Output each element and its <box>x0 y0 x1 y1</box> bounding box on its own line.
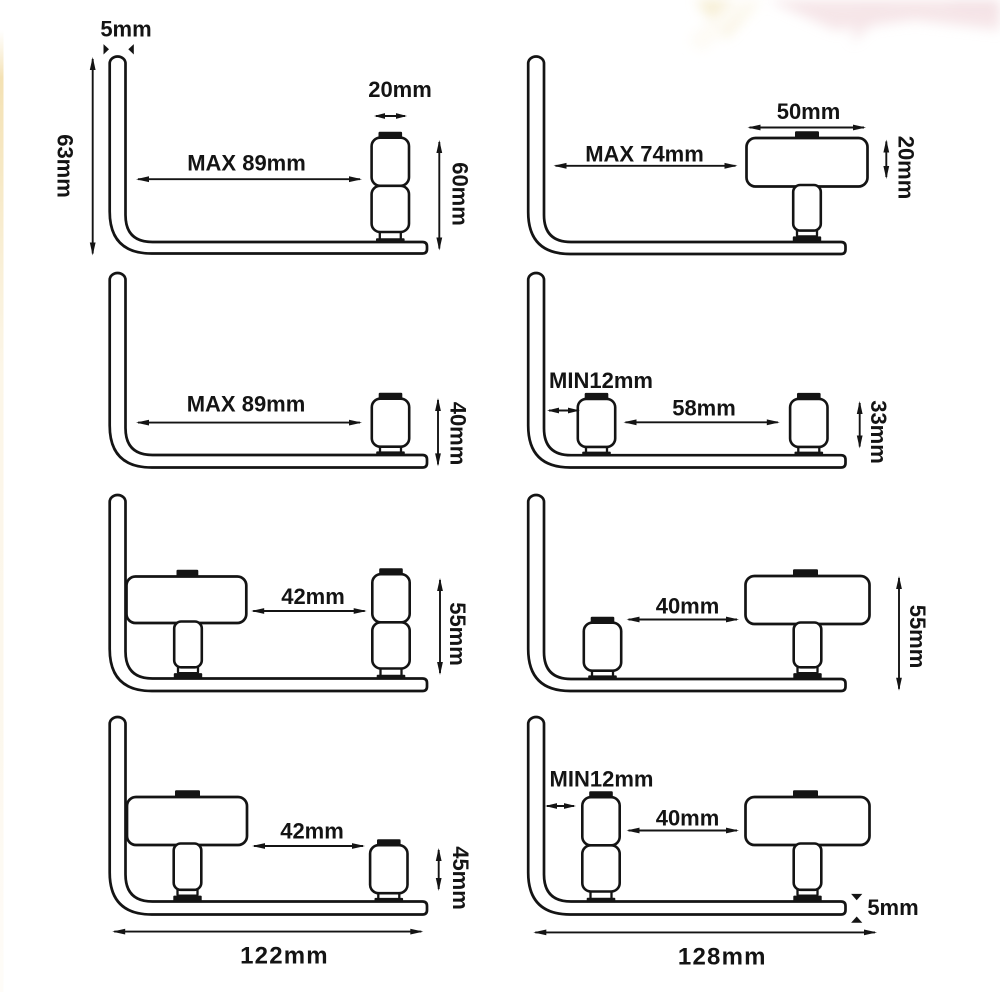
svg-text:5mm: 5mm <box>100 17 151 42</box>
svg-text:42mm: 42mm <box>280 819 344 844</box>
svg-text:40mm: 40mm <box>656 594 720 619</box>
svg-text:20mm: 20mm <box>368 77 432 102</box>
svg-text:40mm: 40mm <box>446 402 471 466</box>
svg-text:122mm: 122mm <box>240 943 329 970</box>
svg-text:50mm: 50mm <box>777 99 841 124</box>
svg-text:20mm: 20mm <box>894 136 919 200</box>
svg-text:42mm: 42mm <box>281 584 345 609</box>
svg-text:58mm: 58mm <box>672 396 736 421</box>
svg-text:55mm: 55mm <box>445 602 470 666</box>
svg-text:55mm: 55mm <box>905 605 930 669</box>
svg-text:33mm: 33mm <box>866 400 891 464</box>
svg-text:MAX 74mm: MAX 74mm <box>585 142 704 167</box>
svg-text:60mm: 60mm <box>448 162 473 226</box>
svg-text:MIN12mm: MIN12mm <box>549 368 653 393</box>
svg-text:MIN12mm: MIN12mm <box>550 767 654 792</box>
svg-text:63mm: 63mm <box>53 134 78 198</box>
svg-text:45mm: 45mm <box>448 846 473 910</box>
svg-text:MAX 89mm: MAX 89mm <box>187 151 306 176</box>
svg-text:128mm: 128mm <box>678 944 767 971</box>
svg-text:5mm: 5mm <box>867 895 918 920</box>
svg-text:40mm: 40mm <box>656 806 720 831</box>
svg-text:MAX 89mm: MAX 89mm <box>187 392 306 417</box>
